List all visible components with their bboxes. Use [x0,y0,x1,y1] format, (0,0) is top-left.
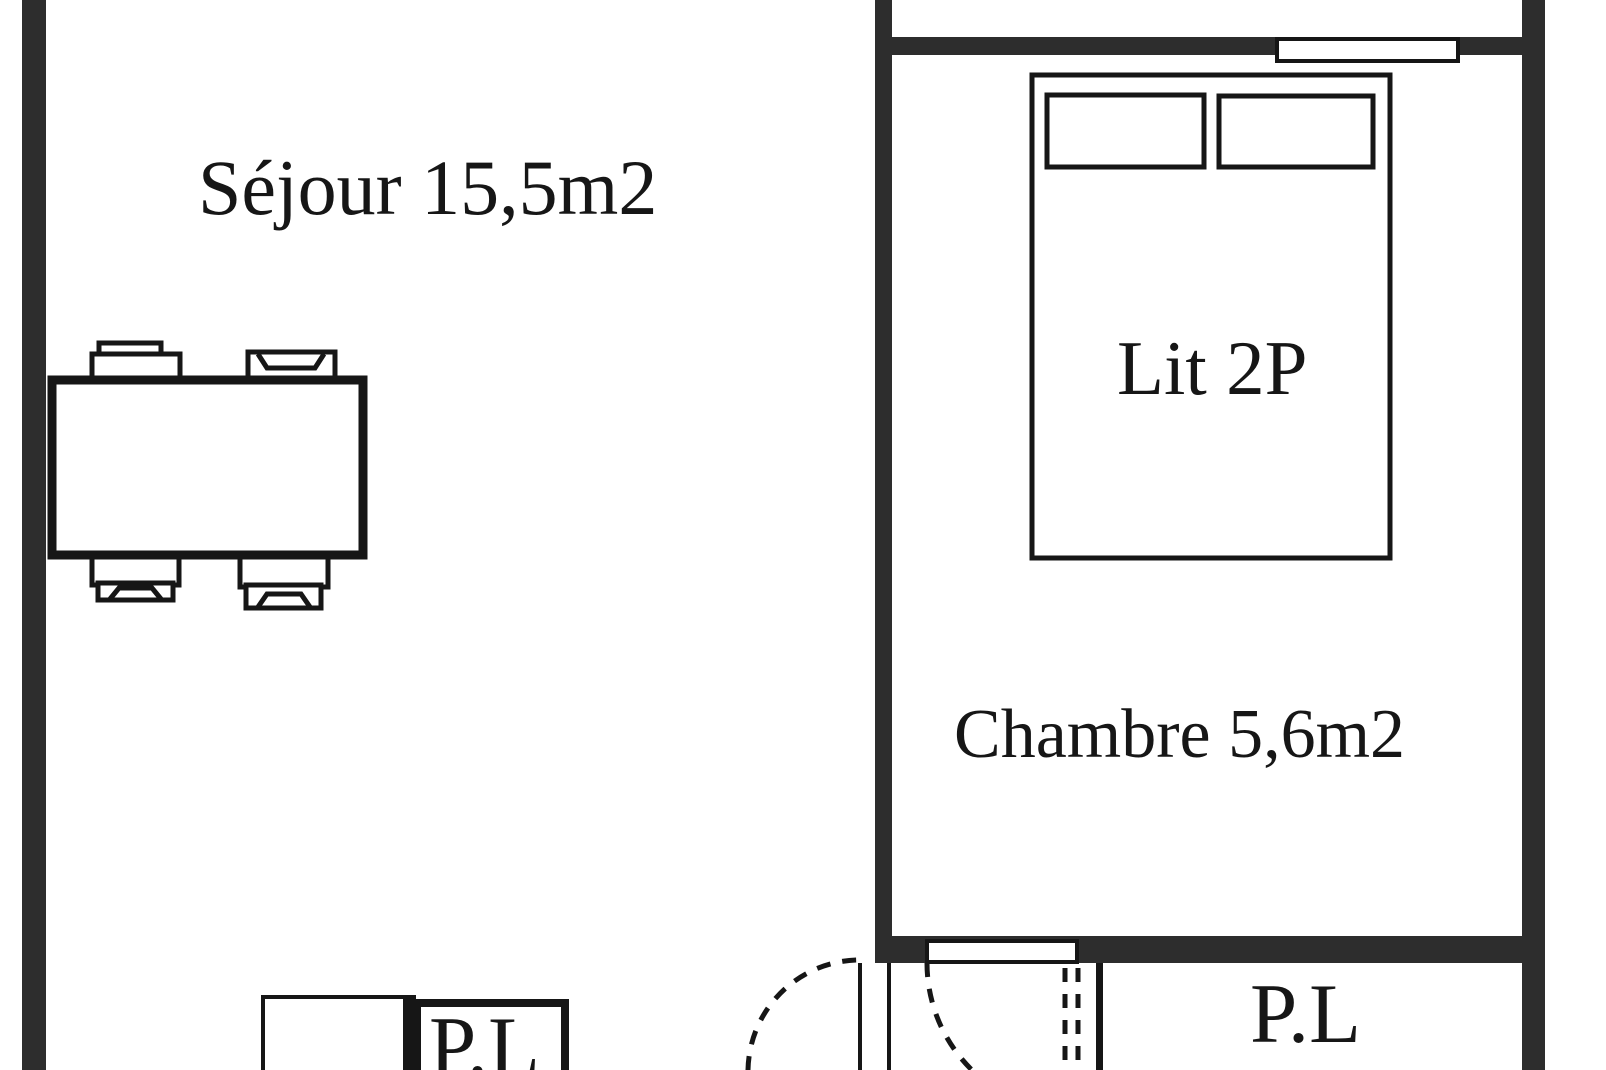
door-swings [748,960,1078,1070]
closet-right-side-line [1096,963,1103,1070]
chair-bottom-left [92,555,179,600]
chambre-room-label: Chambre 5,6m2 [954,700,1405,770]
right-exterior-wall [1522,0,1545,1070]
pillow-right [1219,96,1373,167]
closet-right-label: P.L [1250,972,1361,1057]
middle-partition-wall [875,0,892,963]
floor-plan: Séjour 15,5m2 Chambre 5,6m2 Lit 2P P.L P… [0,0,1606,1070]
bedroom-door-frame [927,941,1077,962]
closet-left-door-box [263,997,407,1070]
sejour-room-label: Séjour 15,5m2 [198,149,657,227]
bed-label: Lit 2P [1117,330,1307,407]
double-bed [1032,75,1390,558]
bedroom-window [1277,39,1458,61]
pillow-left [1047,95,1204,167]
chair-top-left [92,343,180,381]
left-exterior-wall [22,0,46,1070]
closet-left-label: P.L [429,1005,540,1070]
entry-passage-line-left [858,963,862,1070]
chair-bottom-right [240,555,328,608]
bedroom-door-swing-arc [927,963,1077,1070]
dining-table [52,380,363,555]
entry-door-swing-arc [748,960,858,1070]
chair-seat [240,555,328,587]
entry-passage-line-right [887,963,891,1070]
